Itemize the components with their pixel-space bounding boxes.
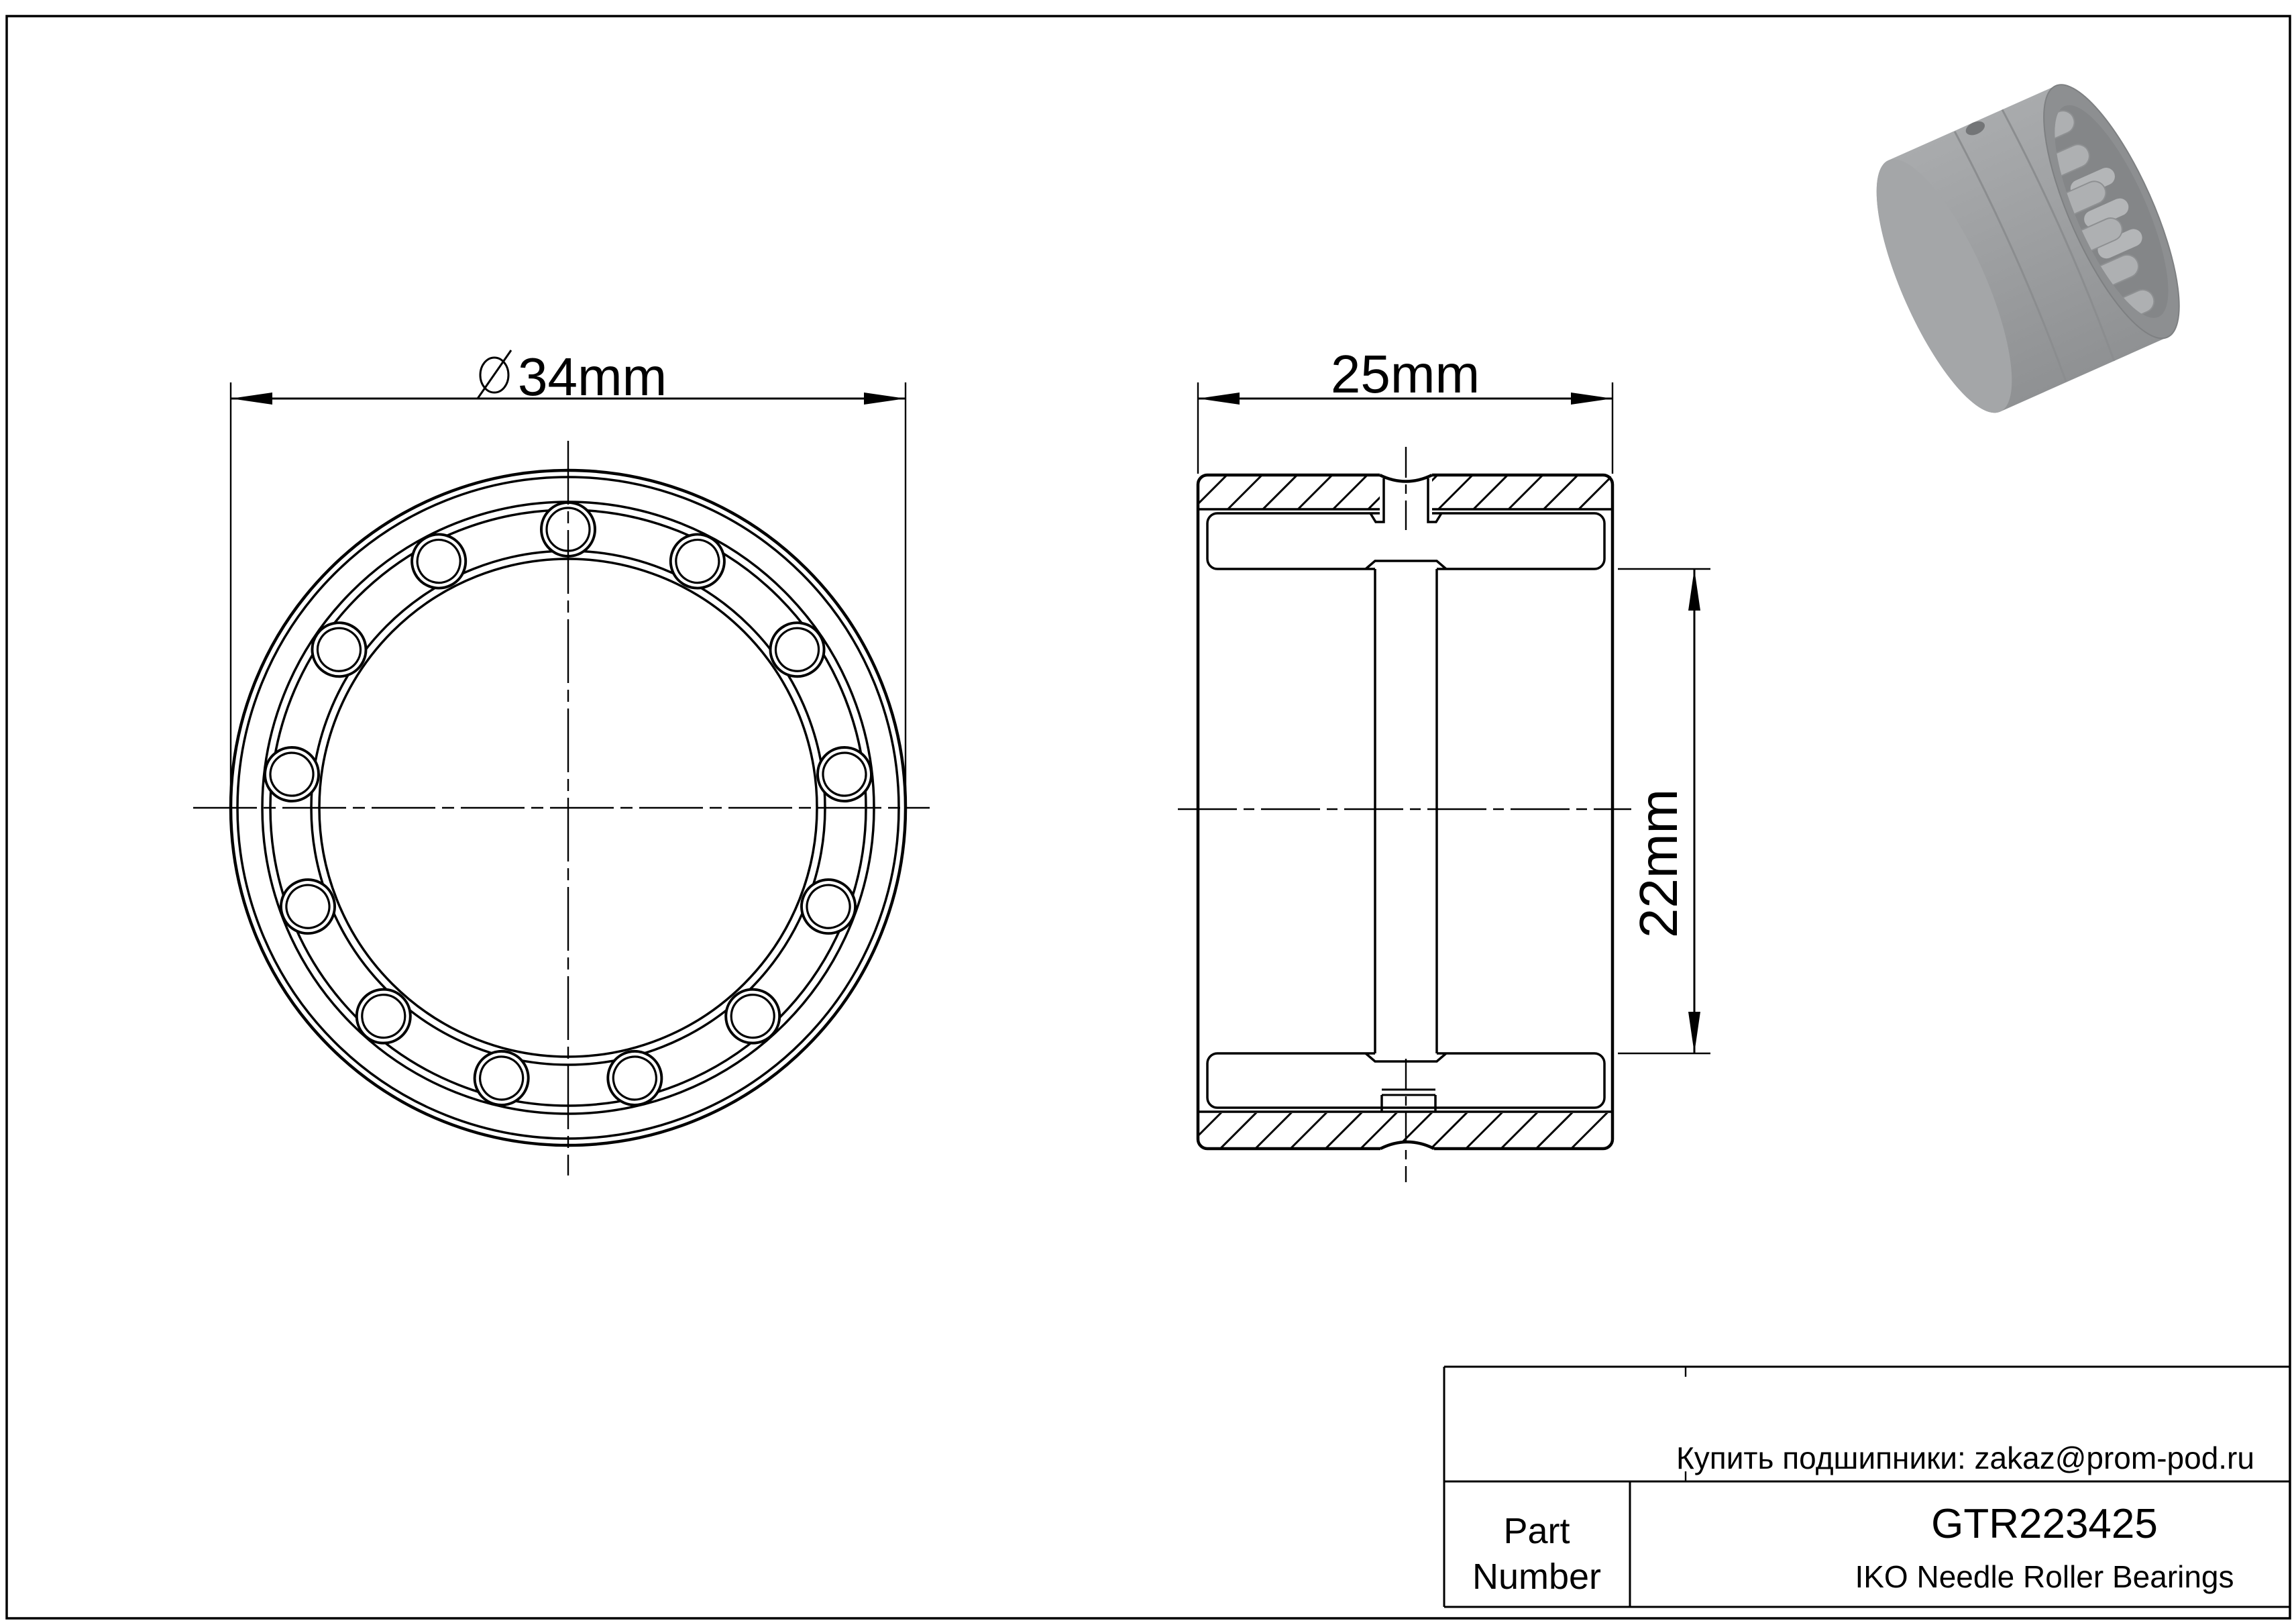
part-number-value: GTR223425 [1931, 1501, 2158, 1547]
part-number-label-line2: Number [1472, 1557, 1601, 1597]
part-number-label-line1: Part [1503, 1511, 1570, 1551]
contact-text: Купить подшипники: zakaz@prom-pod.ru [1676, 1441, 2254, 1475]
hatch-top-right [1428, 476, 1611, 509]
width-label: 25mm [1331, 344, 1480, 404]
hatch-top-left [1199, 476, 1384, 509]
product-line-text: IKO Needle Roller Bearings [1855, 1559, 2234, 1594]
outer-diameter-label: 34mm [518, 347, 667, 407]
bearing-drawing-sheet: 34mm [0, 0, 2296, 1623]
bore-label: 22mm [1629, 789, 1688, 938]
